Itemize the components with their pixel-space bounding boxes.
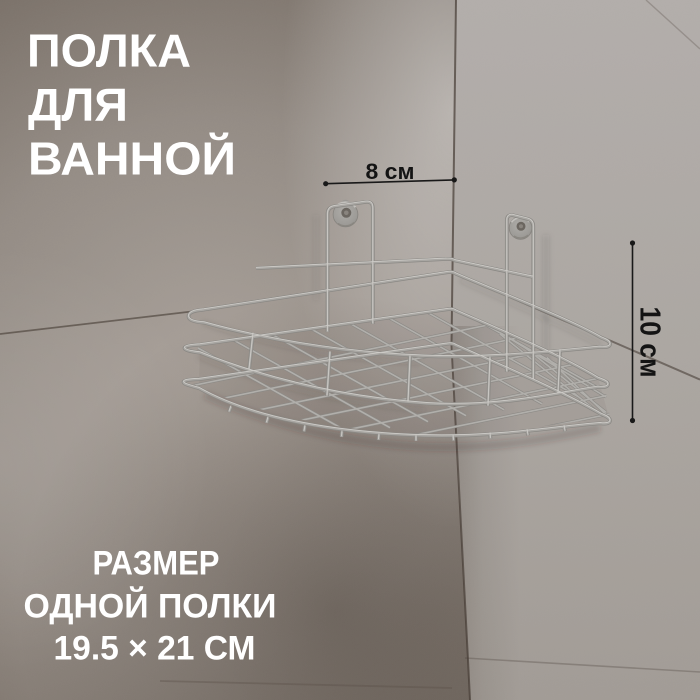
svg-text:10 см: 10 см xyxy=(634,307,666,378)
svg-text:ВАННОЙ: ВАННОЙ xyxy=(28,133,236,185)
svg-text:19.5 × 21 СМ: 19.5 × 21 СМ xyxy=(54,630,256,668)
svg-text:8 см: 8 см xyxy=(366,159,415,184)
svg-text:ДЛЯ: ДЛЯ xyxy=(28,79,128,131)
svg-text:ОДНОЙ ПОЛКИ: ОДНОЙ ПОЛКИ xyxy=(24,586,277,626)
svg-text:ПОЛКА: ПОЛКА xyxy=(27,25,191,77)
svg-text:РАЗМЕР: РАЗМЕР xyxy=(93,545,220,583)
